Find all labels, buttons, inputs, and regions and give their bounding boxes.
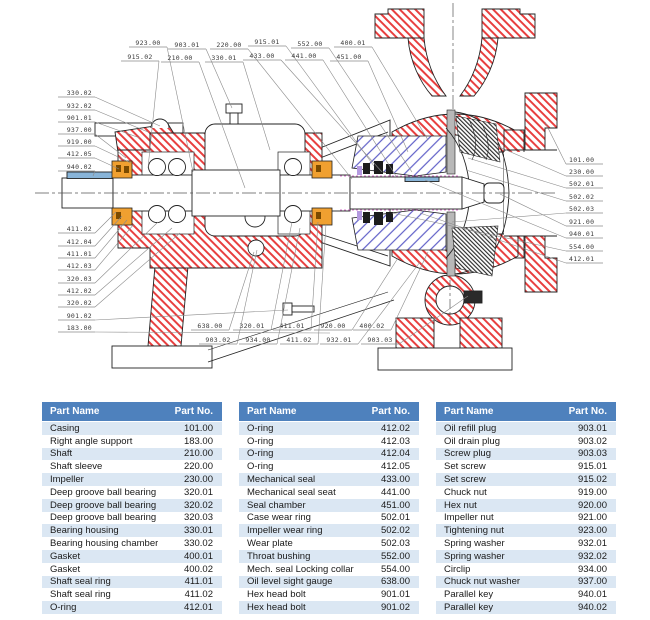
- part-name-cell: Shaft sleeve: [42, 460, 158, 473]
- part-name-cell: Hex head bolt: [239, 601, 355, 614]
- table-row: O-ring412.04: [239, 448, 419, 461]
- hex-bolt-shape: [283, 303, 292, 315]
- part-no-cell: 183.00: [158, 435, 222, 448]
- part-name-cell: Hex head bolt: [239, 588, 355, 601]
- callout-label: 940.01: [569, 230, 594, 238]
- table-row: Impeller nut921.00: [436, 512, 616, 525]
- callout-label: 230.00: [569, 168, 594, 176]
- part-no-cell: 320.03: [158, 512, 222, 525]
- part-name-cell: Oil drain plug: [436, 435, 552, 448]
- callout-label: 441.00: [291, 52, 316, 60]
- parts-table-1: Part NamePart No.Casing101.00Right angle…: [42, 402, 222, 614]
- table-row: Parallel key940.01: [436, 588, 616, 601]
- callout-label: 412.03: [67, 262, 92, 270]
- page: 923.00915.02903.01210.00220.00330.01915.…: [0, 0, 650, 620]
- callout-label: 400.02: [359, 322, 384, 330]
- table-row: Hex head bolt901.02: [239, 601, 419, 614]
- table-row: Casing101.00: [42, 422, 222, 435]
- oil-refill-plug-shape: [226, 104, 242, 113]
- part-no-cell: 210.00: [158, 448, 222, 461]
- part-name-cell: Case wear ring: [239, 512, 355, 525]
- part-name-cell: Chuck nut: [436, 486, 552, 499]
- callout-label: 451.00: [336, 53, 361, 61]
- part-no-cell: 400.02: [158, 563, 222, 576]
- callout-label: 411.02: [67, 225, 92, 233]
- table-row: Deep groove ball bearing320.03: [42, 512, 222, 525]
- part-no-cell: 412.05: [355, 460, 419, 473]
- part-name-cell: Parallel key: [436, 588, 552, 601]
- table-row: Set screw915.02: [436, 473, 616, 486]
- table-row: Parallel key940.02: [436, 601, 616, 614]
- callout-label: 411.01: [279, 322, 304, 330]
- part-no-cell: 441.00: [355, 486, 419, 499]
- parts-table-2: Part NamePart No.O-ring412.02O-ring412.0…: [239, 402, 419, 614]
- part-no-cell: 919.00: [552, 486, 616, 499]
- part-name-cell: Mechanical seal seat: [239, 486, 355, 499]
- table-row: O-ring412.01: [42, 601, 222, 614]
- part-name-cell: Impeller nut: [436, 512, 552, 525]
- part-name-cell: Oil level sight gauge: [239, 576, 355, 589]
- part-name-cell: Screw plug: [436, 448, 552, 461]
- part-no-cell: 400.01: [158, 550, 222, 563]
- part-name-cell: Bearing housing chamber: [42, 537, 158, 550]
- part-no-cell: 330.01: [158, 524, 222, 537]
- part-name-cell: O-ring: [239, 422, 355, 435]
- leader-line: [95, 332, 330, 333]
- part-name-cell: Throat bushing: [239, 550, 355, 563]
- table-row: O-ring412.05: [239, 460, 419, 473]
- callout-label: 554.00: [569, 243, 594, 251]
- table-row: Deep groove ball bearing320.02: [42, 499, 222, 512]
- part-no-cell: 502.01: [355, 512, 419, 525]
- part-name-cell: Casing: [42, 422, 158, 435]
- part-name-cell: Shaft seal ring: [42, 576, 158, 589]
- table-row: Right angle support183.00: [42, 435, 222, 448]
- part-name-cell: O-ring: [239, 435, 355, 448]
- table-row: Hex nut920.00: [436, 499, 616, 512]
- table-row: Shaft seal ring411.01: [42, 576, 222, 589]
- table-row: Hex head bolt901.01: [239, 588, 419, 601]
- table-row: O-ring412.02: [239, 422, 419, 435]
- part-name-cell: Oil refill plug: [436, 422, 552, 435]
- callout-label: 937.00: [67, 126, 92, 134]
- part-name-cell: O-ring: [42, 601, 158, 614]
- column-header: Part Name: [436, 402, 552, 422]
- part-name-cell: Tightening nut: [436, 524, 552, 537]
- leader-line: [352, 258, 398, 330]
- column-header: Part Name: [239, 402, 355, 422]
- callout-label: 901.02: [67, 312, 92, 320]
- table-row: O-ring412.03: [239, 435, 419, 448]
- part-no-cell: 915.01: [552, 460, 616, 473]
- part-no-cell: 320.01: [158, 486, 222, 499]
- part-no-cell: 101.00: [158, 422, 222, 435]
- callout-label: 915.01: [254, 38, 279, 46]
- part-name-cell: Set screw: [436, 473, 552, 486]
- part-name-cell: Impeller: [42, 473, 158, 486]
- column-header: Part No.: [158, 402, 222, 422]
- part-name-cell: Chuck nut washer: [436, 576, 552, 589]
- callout-label: 183.00: [67, 324, 92, 332]
- callout-label: 412.05: [67, 150, 92, 158]
- part-name-cell: Set screw: [436, 460, 552, 473]
- callout-label: 940.02: [67, 163, 92, 171]
- callout-label: 411.02: [286, 336, 311, 344]
- part-name-cell: O-ring: [239, 448, 355, 461]
- callout-label: 400.01: [340, 39, 365, 47]
- callout-label: 101.00: [569, 156, 594, 164]
- part-name-cell: Right angle support: [42, 435, 158, 448]
- table-row: Spring washer932.02: [436, 550, 616, 563]
- part-name-cell: Bearing housing: [42, 524, 158, 537]
- callout-label: 320.01: [239, 322, 264, 330]
- callout-label: 903.02: [205, 336, 230, 344]
- part-name-cell: Mechanical seal: [239, 473, 355, 486]
- part-no-cell: 923.00: [552, 524, 616, 537]
- part-name-cell: Hex nut: [436, 499, 552, 512]
- part-no-cell: 934.00: [552, 563, 616, 576]
- callout-label: 412.02: [67, 287, 92, 295]
- callout-label: 923.00: [135, 39, 160, 47]
- part-no-cell: 411.02: [158, 588, 222, 601]
- part-name-cell: Spring washer: [436, 550, 552, 563]
- table-row: Gasket400.01: [42, 550, 222, 563]
- callout-label: 320.02: [67, 299, 92, 307]
- table-row: Chuck nut washer937.00: [436, 576, 616, 589]
- part-no-cell: 932.02: [552, 550, 616, 563]
- part-name-cell: Circlip: [436, 563, 552, 576]
- part-no-cell: 502.02: [355, 524, 419, 537]
- part-no-cell: 412.01: [158, 601, 222, 614]
- callout-label: 433.00: [249, 52, 274, 60]
- table-row: Case wear ring502.01: [239, 512, 419, 525]
- column-header: Part No.: [355, 402, 419, 422]
- part-no-cell: 451.00: [355, 499, 419, 512]
- table-row: Screw plug903.03: [436, 448, 616, 461]
- part-name-cell: Seal chamber: [239, 499, 355, 512]
- part-name-cell: Deep groove ball bearing: [42, 499, 158, 512]
- part-no-cell: 320.02: [158, 499, 222, 512]
- callout-label: 552.00: [297, 40, 322, 48]
- table-row: Mech. seal Locking collar554.00: [239, 563, 419, 576]
- callout-label: 330.02: [67, 89, 92, 97]
- part-name-cell: Deep groove ball bearing: [42, 512, 158, 525]
- part-name-cell: Spring washer: [436, 537, 552, 550]
- table-row: Shaft seal ring411.02: [42, 588, 222, 601]
- callout-label: 903.01: [174, 41, 199, 49]
- part-no-cell: 552.00: [355, 550, 419, 563]
- table-row: Oil refill plug903.01: [436, 422, 616, 435]
- table-row: Bearing housing330.01: [42, 524, 222, 537]
- callout-label: 638.00: [197, 322, 222, 330]
- table-row: Set screw915.01: [436, 460, 616, 473]
- part-no-cell: 502.03: [355, 537, 419, 550]
- part-no-cell: 330.02: [158, 537, 222, 550]
- table-row: Gasket400.02: [42, 563, 222, 576]
- part-name-cell: Shaft seal ring: [42, 588, 158, 601]
- callout-label: 932.01: [326, 336, 351, 344]
- part-name-cell: Impeller wear ring: [239, 524, 355, 537]
- part-no-cell: 937.00: [552, 576, 616, 589]
- part-name-cell: Parallel key: [436, 601, 552, 614]
- part-no-cell: 901.02: [355, 601, 419, 614]
- part-no-cell: 903.01: [552, 422, 616, 435]
- column-header: Part Name: [42, 402, 158, 422]
- callout-label: 320.03: [67, 275, 92, 283]
- callout-411.02: 411.02: [58, 212, 116, 233]
- table-row: Oil drain plug903.02: [436, 435, 616, 448]
- table-row: Shaft210.00: [42, 448, 222, 461]
- part-no-cell: 940.02: [552, 601, 616, 614]
- callout-label: 411.01: [67, 250, 92, 258]
- part-name-cell: Shaft: [42, 448, 158, 461]
- part-no-cell: 412.02: [355, 422, 419, 435]
- part-no-cell: 903.02: [552, 435, 616, 448]
- part-no-cell: 220.00: [158, 460, 222, 473]
- table-row: Impeller230.00: [42, 473, 222, 486]
- part-no-cell: 915.02: [552, 473, 616, 486]
- table-row: Seal chamber451.00: [239, 499, 419, 512]
- callout-label: 502.03: [569, 205, 594, 213]
- callout-label: 412.01: [569, 255, 594, 263]
- parallel-key-left-shape: [67, 172, 114, 179]
- table-row: Oil level sight gauge638.00: [239, 576, 419, 589]
- column-header: Part No.: [552, 402, 616, 422]
- pump-cross-section-diagram: 923.00915.02903.01210.00220.00330.01915.…: [0, 0, 650, 395]
- callout-label: 330.01: [211, 54, 236, 62]
- part-name-cell: Deep groove ball bearing: [42, 486, 158, 499]
- table-row: Spring washer932.01: [436, 537, 616, 550]
- table-row: Mechanical seal433.00: [239, 473, 419, 486]
- callout-label: 210.00: [167, 54, 192, 62]
- part-name-cell: Gasket: [42, 563, 158, 576]
- callout-label: 502.02: [569, 193, 594, 201]
- part-no-cell: 411.01: [158, 576, 222, 589]
- part-name-cell: Wear plate: [239, 537, 355, 550]
- table-row: Circlip934.00: [436, 563, 616, 576]
- part-name-cell: Gasket: [42, 550, 158, 563]
- callout-label: 412.04: [67, 238, 92, 246]
- part-no-cell: 412.03: [355, 435, 419, 448]
- leader-line: [95, 97, 160, 126]
- part-no-cell: 433.00: [355, 473, 419, 486]
- pump-drawing-svg: 923.00915.02903.01210.00220.00330.01915.…: [0, 0, 650, 395]
- part-name-cell: Mech. seal Locking collar: [239, 563, 355, 576]
- table-row: Impeller wear ring502.02: [239, 524, 419, 537]
- part-no-cell: 903.03: [552, 448, 616, 461]
- table-row: Mechanical seal seat441.00: [239, 486, 419, 499]
- table-row: Bearing housing chamber330.02: [42, 537, 222, 550]
- callout-label: 901.01: [67, 114, 92, 122]
- callout-label: 921.00: [569, 218, 594, 226]
- callout-label: 915.02: [127, 53, 152, 61]
- part-no-cell: 932.01: [552, 537, 616, 550]
- parts-table-3: Part NamePart No.Oil refill plug903.01Oi…: [436, 402, 616, 614]
- callout-label: 502.01: [569, 180, 594, 188]
- callout-label: 220.00: [216, 41, 241, 49]
- part-no-cell: 638.00: [355, 576, 419, 589]
- table-row: Deep groove ball bearing320.01: [42, 486, 222, 499]
- suction-flange-shape: [504, 93, 557, 292]
- callout-label: 903.03: [367, 336, 392, 344]
- table-row: Throat bushing552.00: [239, 550, 419, 563]
- callout-label: 920.00: [320, 322, 345, 330]
- part-no-cell: 230.00: [158, 473, 222, 486]
- callout-920.00: 920.00: [314, 258, 398, 330]
- table-row: Shaft sleeve220.00: [42, 460, 222, 473]
- table-row: Tightening nut923.00: [436, 524, 616, 537]
- part-no-cell: 901.01: [355, 588, 419, 601]
- parts-tables: Part NamePart No.Casing101.00Right angle…: [42, 402, 616, 614]
- parallel-key-right-shape: [405, 177, 439, 182]
- table-row: Wear plate502.03: [239, 537, 419, 550]
- callout-label: 919.00: [67, 138, 92, 146]
- part-no-cell: 412.04: [355, 448, 419, 461]
- callout-label: 934.00: [245, 336, 270, 344]
- leader-line: [95, 310, 288, 320]
- part-no-cell: 554.00: [355, 563, 419, 576]
- part-name-cell: O-ring: [239, 460, 355, 473]
- part-no-cell: 940.01: [552, 588, 616, 601]
- callout-label: 932.02: [67, 102, 92, 110]
- table-row: Chuck nut919.00: [436, 486, 616, 499]
- part-no-cell: 920.00: [552, 499, 616, 512]
- part-no-cell: 921.00: [552, 512, 616, 525]
